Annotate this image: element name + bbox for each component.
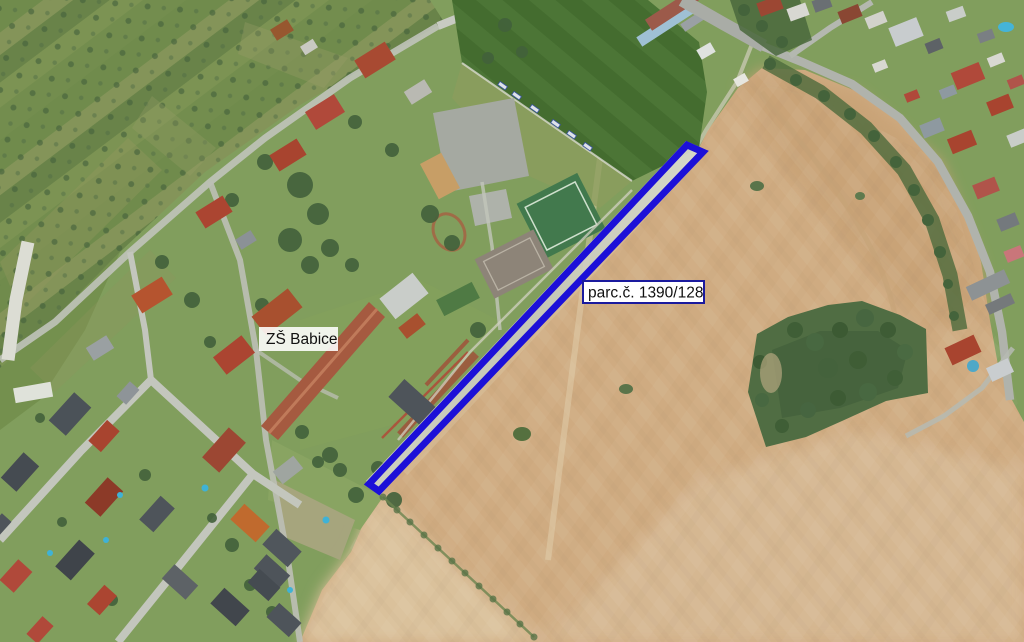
svg-text:parc.č. 1390/128: parc.č. 1390/128 [588,285,703,302]
svg-text:ZŠ Babice: ZŠ Babice [266,331,338,348]
